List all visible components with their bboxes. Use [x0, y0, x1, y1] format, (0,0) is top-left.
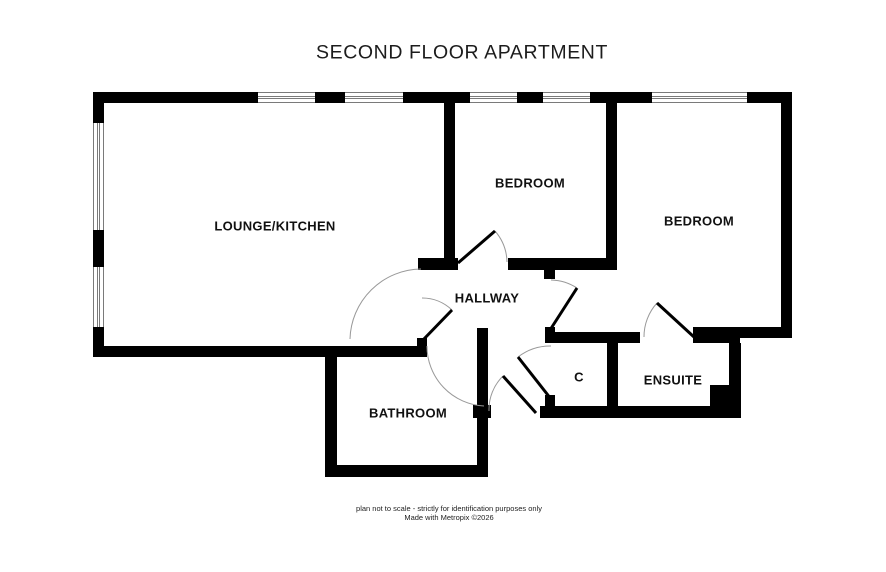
wall-segment — [325, 465, 488, 477]
wall-segment — [781, 92, 792, 338]
room-label-bedroom-2: BEDROOM — [664, 214, 734, 229]
wall-segment — [508, 258, 617, 270]
room-label-closet: C — [574, 370, 584, 385]
door-arc — [427, 346, 484, 406]
wall-segment — [93, 346, 427, 357]
door-arc — [489, 376, 503, 411]
door-leaf — [458, 231, 495, 263]
window — [652, 92, 747, 104]
wall-segment — [545, 332, 640, 343]
wall-segment — [473, 405, 491, 418]
wall-segment — [729, 343, 741, 418]
windows — [93, 92, 748, 328]
room-label-bedroom-1: BEDROOM — [495, 176, 565, 191]
door-leaf — [550, 288, 577, 330]
wall-segment — [710, 385, 729, 406]
door-leaf — [518, 357, 551, 399]
window — [345, 92, 403, 104]
door-arc — [644, 303, 657, 337]
floor-plan-page: SECOND FLOOR APARTMENT — [0, 0, 886, 572]
room-label-ensuite: ENSUITE — [644, 373, 702, 388]
door-leaf — [657, 303, 694, 337]
wall-segment — [693, 332, 740, 343]
wall-segment — [544, 270, 555, 279]
window — [93, 123, 105, 230]
wall-segment — [444, 103, 455, 258]
door-leaf — [422, 310, 452, 341]
room-label-bathroom: BATHROOM — [369, 406, 447, 421]
wall-segment — [606, 103, 617, 270]
wall-segment — [477, 328, 488, 465]
wall-segment — [325, 357, 337, 477]
door-arc — [422, 298, 452, 310]
credit-text: Made with Metropix ©2026 — [404, 513, 493, 522]
room-label-lounge-kitchen: LOUNGE/KITCHEN — [214, 219, 335, 234]
room-label-hallway: HALLWAY — [455, 291, 519, 306]
wall-segment — [540, 406, 740, 418]
window — [543, 92, 590, 104]
window — [258, 92, 315, 104]
window — [93, 267, 105, 327]
wall-segment — [418, 258, 458, 270]
door-arc — [551, 280, 577, 288]
window — [470, 92, 517, 104]
floor-plan-drawing — [0, 0, 886, 572]
disclaimer-text: plan not to scale - strictly for identif… — [356, 504, 542, 513]
door-arc — [495, 231, 507, 262]
door-arc — [350, 269, 421, 339]
door-arc — [518, 346, 551, 357]
door-leaf — [503, 376, 536, 413]
